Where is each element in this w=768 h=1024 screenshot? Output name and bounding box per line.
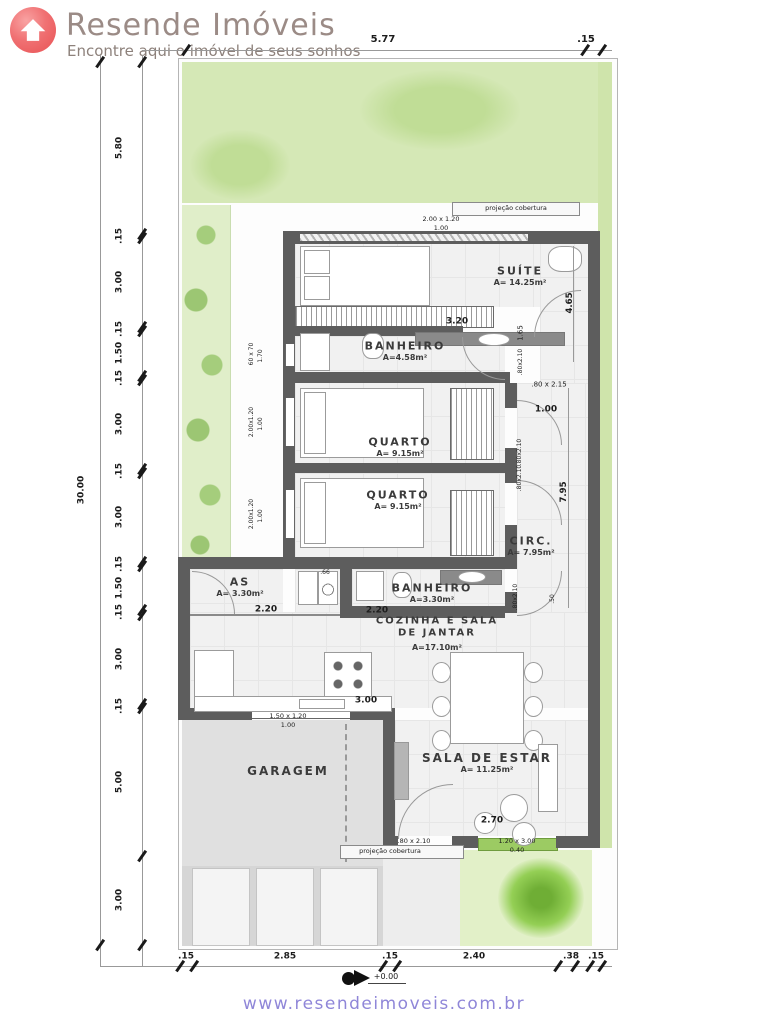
room-area-label: A= 9.15m² [376, 450, 423, 458]
wall [178, 557, 517, 569]
room-label: BANHEIRO [365, 341, 446, 354]
plan-label: 1.70 [258, 349, 264, 362]
plan-label: projeção cobertura [485, 205, 547, 212]
wardrobe-icon [450, 388, 494, 460]
tree-icon [190, 130, 290, 200]
plan-label: .80x2.10 [517, 465, 523, 491]
plan-label: +0.00 [374, 973, 399, 981]
dimension-line [100, 55, 101, 966]
chair-icon [432, 730, 451, 751]
bed-icon [300, 246, 430, 306]
room-area-label: A=3.30m² [410, 596, 454, 604]
plan-label: 60 x 70 [249, 343, 255, 366]
room-label: COZINHA E SALA DE JANTAR [376, 616, 498, 639]
wall [556, 836, 600, 848]
floor-plan: 5.77.1530.005.80.153.00.151.50.153.00.15… [0, 0, 768, 1024]
page: Resende Imóveis Encontre aqui o imóvel d… [0, 0, 768, 1024]
plan-label: 2.20 [255, 606, 277, 615]
plan-label: 3.00 [116, 413, 125, 435]
plan-label: 0.40 [510, 847, 524, 854]
plan-label: 2.40 [463, 953, 485, 962]
plan-label: 30.00 [78, 476, 87, 504]
wall [283, 372, 510, 383]
plan-label: 2.00 x 1.20 [423, 216, 460, 223]
suite-window [300, 234, 528, 241]
dimension-line [142, 50, 612, 51]
stove-icon [324, 652, 372, 698]
plan-label: .80x2.10 [518, 349, 524, 375]
dimension-line [142, 55, 143, 966]
driveway-slab [320, 868, 378, 946]
plan-label: .15 [116, 321, 125, 337]
hedge-strip [182, 205, 231, 565]
wall [588, 231, 600, 848]
plan-label: 2.00x1.20 [249, 407, 255, 437]
chair-icon [524, 662, 543, 683]
plan-label: .80x2.10 [513, 584, 519, 610]
plan-label: .15 [178, 953, 194, 962]
dining-table-icon [450, 652, 524, 744]
room-label: QUARTO [366, 490, 429, 503]
plan-label: 1.65 [518, 325, 525, 341]
plan-label: 5.77 [371, 35, 396, 45]
plan-label: 1.20 x 3.00 [499, 838, 536, 845]
window [285, 344, 295, 366]
plan-label: 7.95 [560, 482, 569, 503]
plan-label: projeção cobertura [359, 848, 421, 855]
plan-label: .15 [116, 228, 125, 244]
plan-label: 1.00 [535, 406, 557, 415]
washer-icon [318, 571, 338, 605]
pillow-icon [304, 392, 326, 454]
wardrobe-icon [450, 490, 494, 556]
wall [178, 557, 190, 720]
plan-label: .80 x 2.15 [531, 382, 566, 389]
wall [505, 383, 517, 408]
plan-label: 3.00 [116, 271, 125, 293]
room-label: CIRC. [510, 536, 553, 549]
plan-label: .50 [550, 594, 556, 604]
plan-label: 1.50 x 1.20 [270, 713, 307, 720]
side-garden-strip [598, 62, 612, 848]
level-marker-line [368, 983, 406, 984]
plan-label: 5.00 [116, 771, 125, 793]
driveway-slab [192, 868, 250, 946]
plan-label: 1.00 [258, 417, 264, 430]
chair-icon [432, 662, 451, 683]
pillow-icon [304, 276, 330, 300]
room-label: GARAGEM [247, 765, 329, 779]
plan-label: .80 x 2.10 [398, 838, 431, 845]
plan-label: 2.85 [274, 953, 296, 962]
fridge-icon [194, 650, 234, 698]
plan-label: 1.50 [116, 342, 125, 364]
wall [283, 463, 510, 473]
plan-label: .15 [116, 370, 125, 386]
room-area-label: A=4.58m² [383, 354, 427, 362]
room-label: SUÍTE [497, 266, 543, 279]
plan-label: .15 [116, 698, 125, 714]
plan-label: 3.20 [446, 318, 468, 327]
driveway-slab [256, 868, 314, 946]
room-label: BANHEIRO [392, 583, 473, 596]
plan-label: 2.70 [481, 817, 503, 826]
tv-unit-icon [394, 742, 409, 800]
shower-icon [356, 571, 384, 601]
plan-label: .15 [116, 604, 125, 620]
plan-label: 5.80 [116, 137, 125, 159]
room-area-label: A= 9.15m² [374, 503, 421, 511]
plan-label: .66 [320, 570, 330, 576]
plan-label: .15 [116, 463, 125, 479]
chair-icon [432, 696, 451, 717]
plan-label: .15 [588, 953, 604, 962]
tree-icon [360, 70, 520, 150]
coffee-table-icon [500, 794, 528, 822]
entry-walkway [383, 848, 460, 946]
room-label: SALA DE ESTAR [422, 752, 552, 766]
room-area-label: A=17.10m² [412, 644, 462, 652]
window [285, 490, 295, 538]
room-area-label: A= 11.25m² [461, 766, 514, 774]
room-label: QUARTO [368, 437, 431, 450]
room-label: AS [230, 577, 250, 590]
plan-label: .15 [116, 556, 125, 572]
plan-label: 3.00 [116, 648, 125, 670]
plan-label: 2.20 [366, 607, 388, 616]
pillow-icon [304, 482, 326, 544]
sink-icon [299, 699, 345, 709]
plan-label: 2.00x1.20 [249, 499, 255, 529]
window [285, 398, 295, 446]
plan-label: 4.65 [566, 293, 575, 314]
chair-icon [548, 246, 582, 272]
room-area-label: A= 7.95m² [507, 549, 554, 557]
plan-label: .15 [577, 35, 595, 45]
plan-label: 1.00 [258, 509, 264, 522]
plant-icon [498, 858, 584, 938]
plan-label: 3.00 [116, 506, 125, 528]
plan-label: 1.00 [281, 722, 295, 729]
plan-label: .80x2.10 [517, 439, 523, 465]
laundry-tub-icon [298, 571, 318, 605]
plan-label: 3.00 [355, 697, 377, 706]
plan-label: 3.00 [116, 889, 125, 911]
website-link[interactable]: www.resendeimoveis.com.br [0, 994, 768, 1014]
plan-label: 1.00 [434, 225, 448, 232]
pillow-icon [304, 250, 330, 274]
room-area-label: A= 14.25m² [494, 279, 547, 287]
plan-label: 1.50 [116, 577, 125, 599]
room-area-label: A= 3.30m² [216, 590, 263, 598]
garage-divider-dashed [345, 724, 347, 862]
shower-icon [300, 333, 330, 371]
chair-icon [524, 696, 543, 717]
